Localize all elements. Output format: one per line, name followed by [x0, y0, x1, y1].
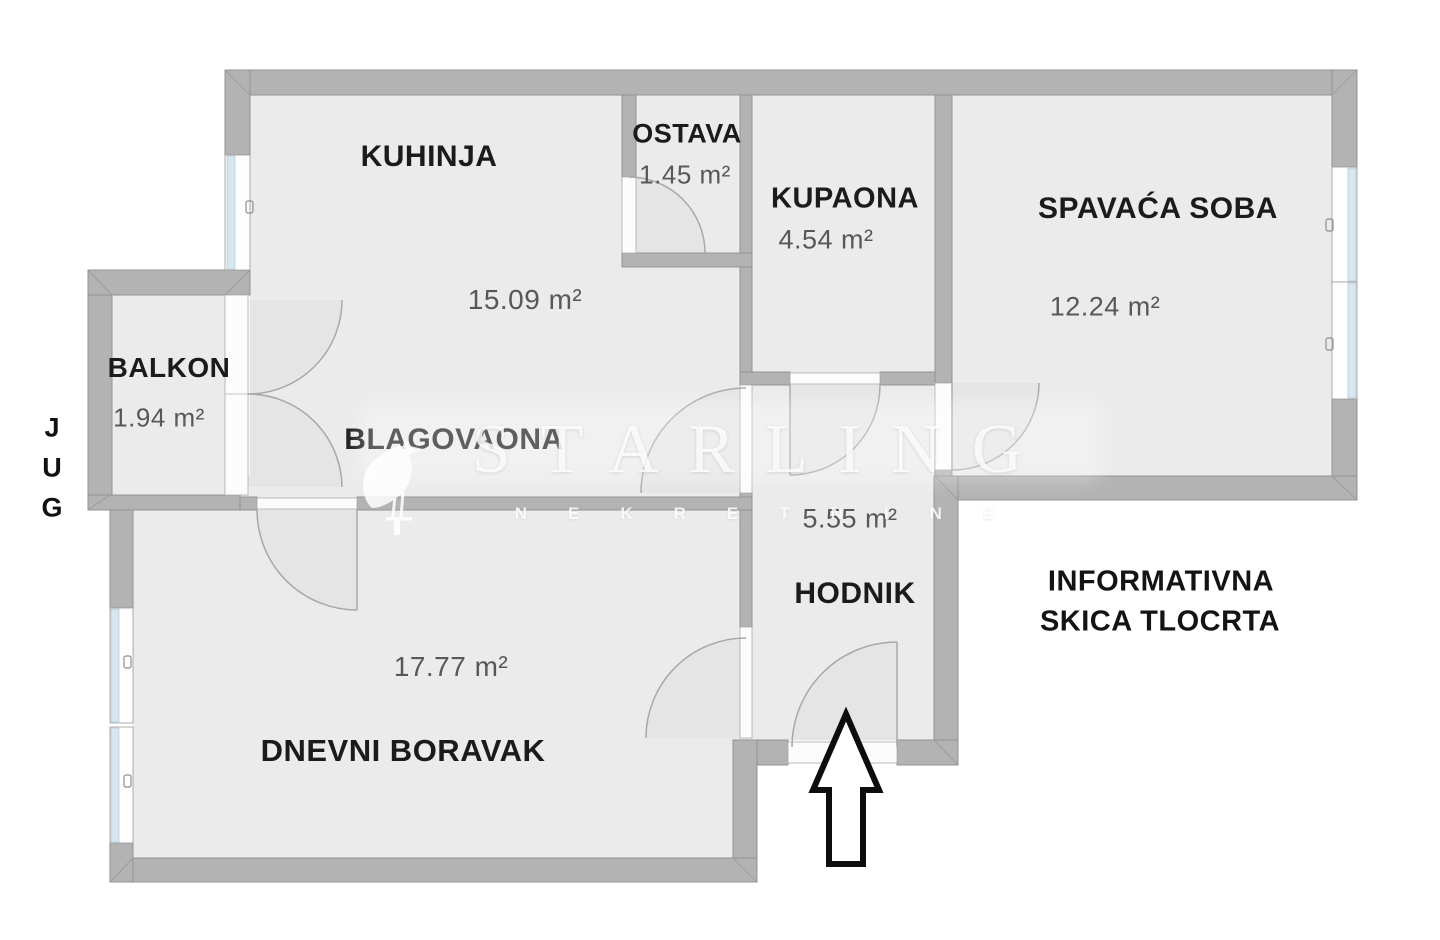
living-room-window-upper: [110, 608, 133, 723]
room-label-balkon: BALKON: [108, 352, 231, 384]
bedroom-window-lower: [1332, 282, 1357, 399]
compass-letter-u: U: [42, 453, 62, 484]
floor-plan-canvas: KUHINJA 15.09 m² OSTAVA 1.45 m² KUPAONA …: [0, 0, 1440, 940]
room-area-ostava: 1.45 m²: [639, 160, 731, 191]
room-area-dnevni-boravak: 17.77 m²: [394, 651, 509, 683]
watermark-subtitle: NEKRETNINE: [515, 504, 1036, 524]
entrance-door-threshold: [788, 742, 897, 763]
compass-letter-g: G: [41, 493, 62, 524]
pantry-door-leaf: [622, 177, 636, 253]
watermark-brand: STARLING: [472, 410, 1053, 490]
bedroom-window-upper: [1332, 167, 1357, 282]
balcony-door-leaves: [225, 295, 248, 495]
room-label-kupaona: KUPAONA: [771, 183, 919, 216]
room-label-kuhinja: KUHINJA: [361, 140, 498, 174]
room-area-kuhinja: 15.09 m²: [468, 284, 583, 316]
dining-living-door-threshold: [257, 498, 357, 509]
compass-letter-j: J: [44, 413, 59, 444]
disclaimer-line-2: SKICA TLOCRTA: [1040, 606, 1280, 639]
room-label-ostava: OSTAVA: [632, 119, 742, 150]
bathroom-door-threshold: [790, 373, 880, 384]
room-label-dnevni-boravak: DNEVNI BORAVAK: [261, 733, 546, 769]
room-area-spavaca-soba: 12.24 m²: [1050, 292, 1161, 323]
living-room-window-lower: [110, 727, 133, 843]
room-area-balkon: 1.94 m²: [113, 403, 205, 434]
disclaimer-line-1: INFORMATIVNA: [1048, 566, 1274, 599]
living-hall-door-leaf: [740, 627, 752, 738]
room-area-kupaona: 4.54 m²: [778, 225, 873, 256]
room-label-hodnik: HODNIK: [794, 577, 915, 611]
room-label-spavaca-soba: SPAVAĆA SOBA: [1038, 192, 1278, 226]
